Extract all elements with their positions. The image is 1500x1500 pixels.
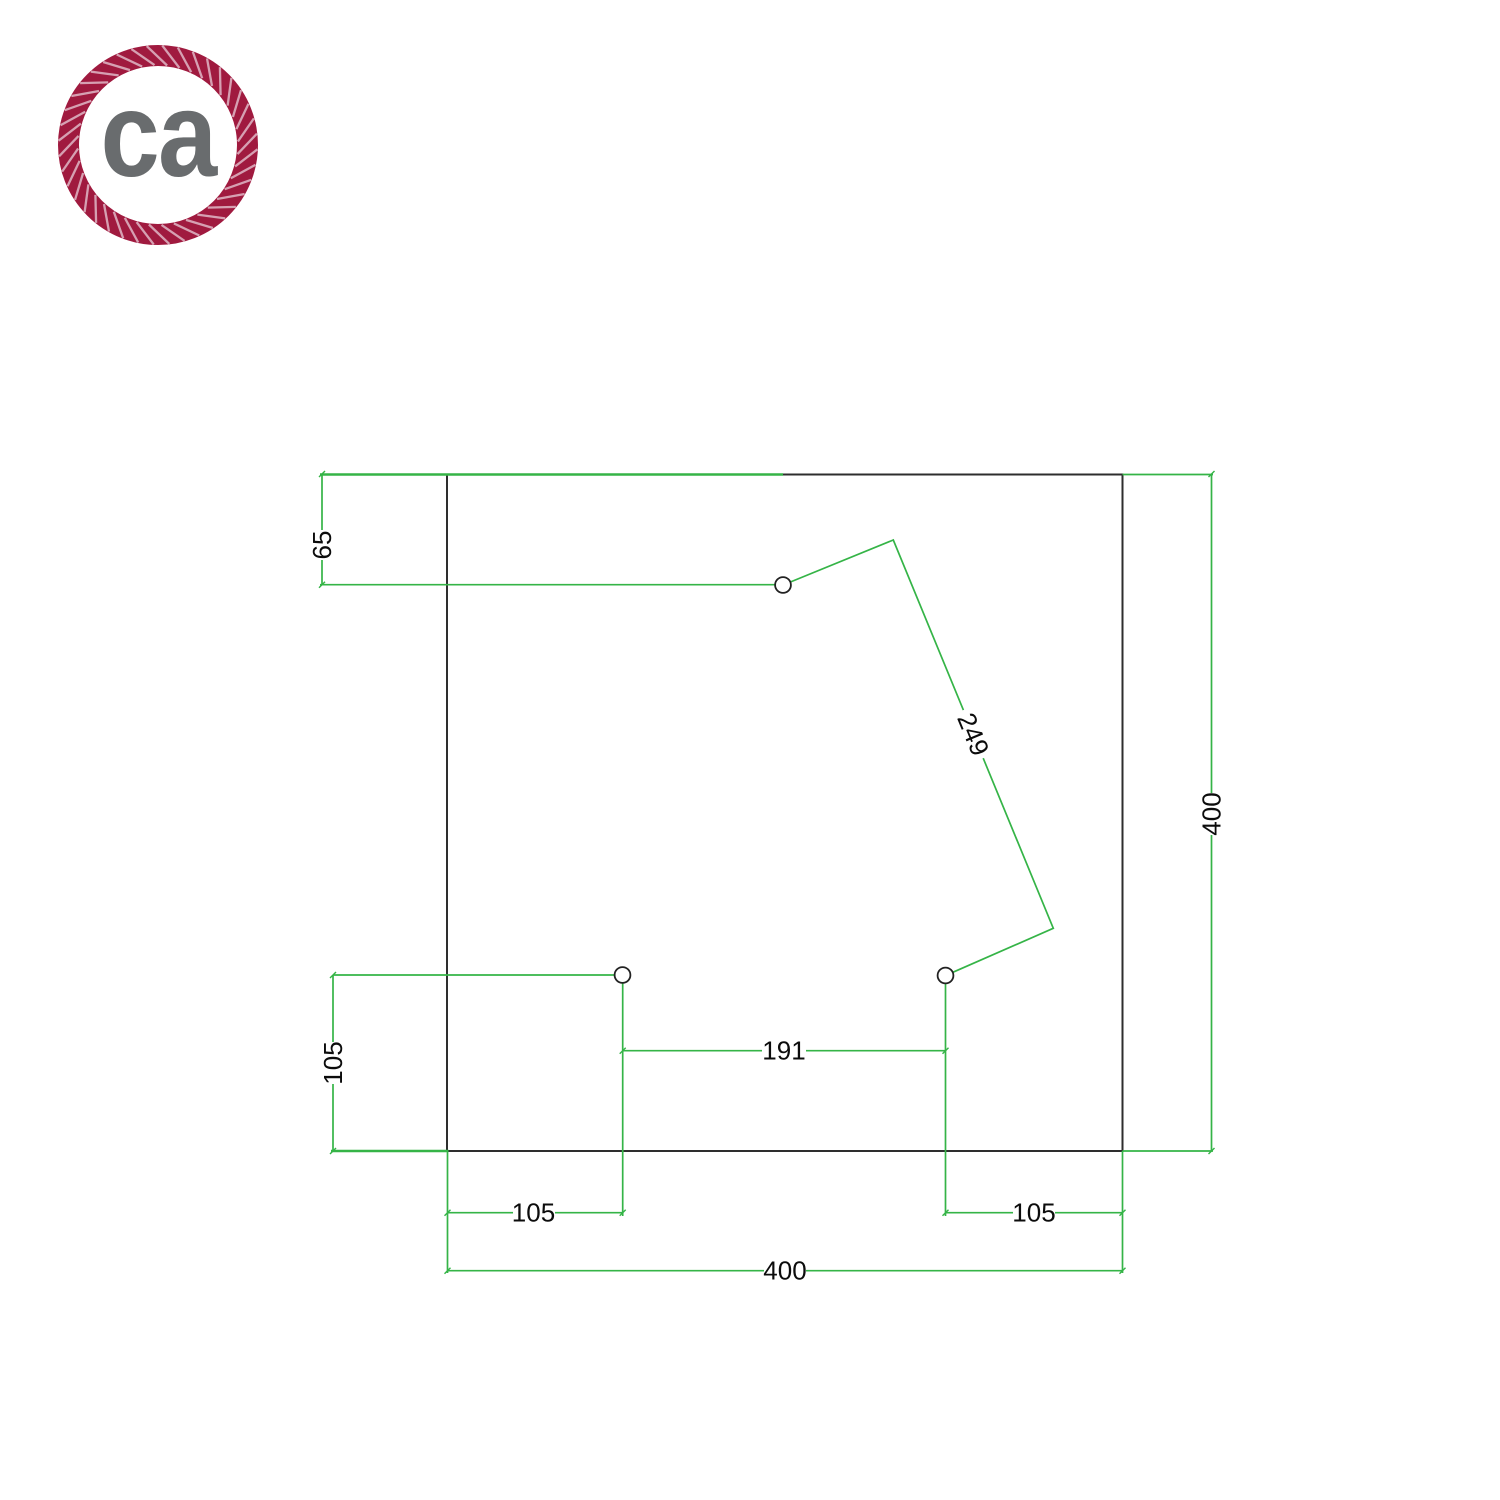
svg-text:105: 105 [512,1198,555,1228]
svg-text:400: 400 [1197,792,1227,835]
svg-text:105: 105 [1012,1198,1055,1228]
svg-text:ca: ca [101,68,219,203]
svg-text:191: 191 [762,1036,805,1066]
svg-text:249: 249 [951,708,995,760]
svg-text:105: 105 [318,1041,348,1084]
svg-text:400: 400 [763,1256,806,1286]
svg-text:65: 65 [307,531,337,560]
